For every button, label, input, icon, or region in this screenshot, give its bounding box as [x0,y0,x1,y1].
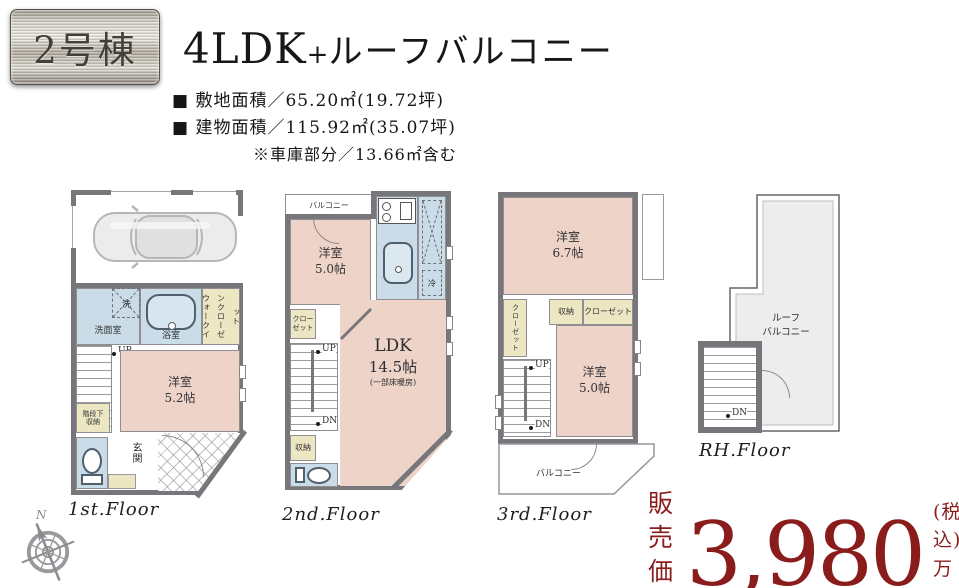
price-suffix: (税込) 万円 [933,498,959,588]
floor-rh-label: RH.Floor [699,440,791,461]
stairs-dot [316,350,320,354]
ldk-size: 14.5帖 [345,356,441,377]
price-prefix: 販売 価格 [648,487,676,588]
roof-balcony-line2: バルコニー [738,326,834,340]
bedroom1-3f: 洋室 6.7帖 [503,197,633,295]
roof-balcony-label: ルーフバルコニー [328,32,613,72]
wall [238,190,243,216]
bedroom-1f-name: 洋室 [168,375,192,391]
bedroom1-3f-size: 6.7帖 [552,246,583,262]
stair-rail [524,366,527,421]
under-stairs-storage: 階段下収納 [76,403,110,433]
bedroom-1f: 洋室 5.2帖 [120,350,240,432]
closet-2f: クローゼット [290,309,316,339]
car-top-view [90,198,240,276]
stairs-dn-label-rh: DN [732,408,747,418]
sink-icon [383,242,413,284]
building-area-line: ■ 建物面積／115.92㎡(35.07坪) [172,113,456,138]
floor3-label: 3rd.Floor [497,504,592,525]
stairs-dot [316,422,320,426]
stairs-dot [529,426,533,430]
window-marker [495,416,502,430]
balcony-door-arc [571,444,597,470]
floor2-label: 2nd.Floor [282,504,380,525]
walk-in-closet: ウォークインクローゼット [202,288,240,345]
bedroom-1f-size: 5.2帖 [164,391,195,407]
window-marker [634,340,641,354]
bedroom-2f-size: 5.0帖 [315,262,346,278]
washer-label: 洗 [122,297,131,310]
window-marker [446,342,453,356]
toilet-tank-icon [81,474,103,485]
cupboard [422,200,442,264]
grill-icon [400,202,412,220]
stairs-dn-label-2f: DN [322,416,337,426]
fridge-label: 冷 [428,278,436,289]
floorplan-2f: バルコニー 洋室 5.0帖 冷 LDK 14.5帖 (一部床暖房) クローゼット [283,190,457,502]
balcony-2f-label: バルコニー [309,201,349,211]
roof-balcony-label: ルーフ バルコニー [738,312,834,341]
window-marker [239,365,246,379]
washroom-label: 洗面室 [94,326,121,338]
refrigerator: 冷 [422,270,442,296]
price-amount: 3,980 [686,513,923,588]
window-marker [634,362,641,376]
floorplan-rh: ルーフ バルコニー DN [690,190,856,462]
price-prefix-line2: 価格 [648,555,676,588]
toilet-icon [82,448,102,474]
window-marker [239,388,246,402]
garage-side-line [72,206,73,248]
ldk [340,300,446,486]
compass-rose-icon [6,510,89,588]
compass: N [14,508,86,586]
bath-label: 浴室 [140,328,202,341]
storage-2f: 収納 [290,435,316,461]
floorplan-3f: 洋室 6.7帖 クローゼット 収納 クローゼット 洋室 5.0帖 UP DN バ… [496,190,672,506]
window-marker [446,316,453,330]
floorplan-1f: 洗面室 洗 浴室 ウォークインクローゼット UP 階段下収納 洋室 5.2帖 玄… [68,190,248,502]
stairs-dot [529,366,533,370]
closet-left-3f: クローゼット [503,299,527,357]
price-prefix-line1: 販売 [648,487,676,555]
roof-balcony-line1: ルーフ [738,312,834,326]
site-area-line: ■ 敷地面積／65.20㎡(19.72坪) [172,86,444,111]
closet-right-3f: クローゼット [583,299,633,325]
stairs-dot [112,352,116,356]
side-eave-strip [642,194,664,280]
ldk-labels: LDK 14.5帖 (一部床暖房) [345,336,441,388]
price-tax-note: (税込) [933,498,959,555]
page-title: 4LDK+ルーフバルコニー [183,24,614,73]
storage-3f-label: 収納 [558,307,574,317]
ldk-name: LDK [345,336,441,356]
wic-label: ウォークインクローゼット [199,291,244,343]
closet-left-3f-label: クローゼット [510,301,519,355]
faucet-icon [395,266,402,273]
bedroom2-3f-name: 洋室 [582,365,606,381]
stairs-dot [726,414,730,418]
wall [71,190,76,206]
bedroom1-3f-name: 洋室 [556,230,580,246]
bedroom-2f-name: 洋室 [318,246,342,262]
layout-type-label: 4LDK [183,24,307,73]
closet-2f-label: クローゼット [292,315,314,333]
wall [171,190,193,195]
closet-right-3f-label: クローゼット [584,307,632,317]
price-unit: 万円 [933,555,959,588]
bedroom2-3f: 洋室 5.0帖 [556,325,633,437]
roof-door-arc [762,370,790,398]
burner-icon [382,213,391,222]
bedroom2-3f-size: 5.0帖 [579,381,610,397]
wall [71,248,76,285]
wall [71,190,111,195]
storage-2f-label: 収納 [295,443,311,453]
entrance-label: 玄関 [128,442,143,482]
stairs-up-label-3f: UP [535,360,549,370]
window-marker [495,395,502,409]
building-number-badge: 2号棟 [10,9,160,85]
stair-rail [311,350,314,412]
cupboard-x-icon [423,201,441,263]
plus-sign: + [307,40,329,70]
floorplan-flyer: 2号棟 4LDK+ルーフバルコニー ■ 敷地面積／65.20㎡(19.72坪) … [0,0,959,588]
garage-area-note: ※車庫部分／13.66㎡含む [253,141,457,165]
stairs-rh [698,341,762,433]
burner-icon [382,202,391,211]
stairs-up-label-2f: UP [322,344,336,354]
price-block: 販売 価格 3,980 (税込) 万円 [648,487,959,588]
toilet-icon [307,467,331,484]
washing-machine: 洗 [112,288,140,318]
building-number-label: 2号棟 [33,20,137,74]
storage-3f: 収納 [549,299,583,325]
toilet-tank-icon [295,467,305,483]
stairs-dn-label-3f: DN [535,420,550,430]
ldk-note: (一部床暖房) [345,377,441,388]
under-stairs-label: 階段下収納 [81,410,105,427]
window-marker [446,246,453,260]
